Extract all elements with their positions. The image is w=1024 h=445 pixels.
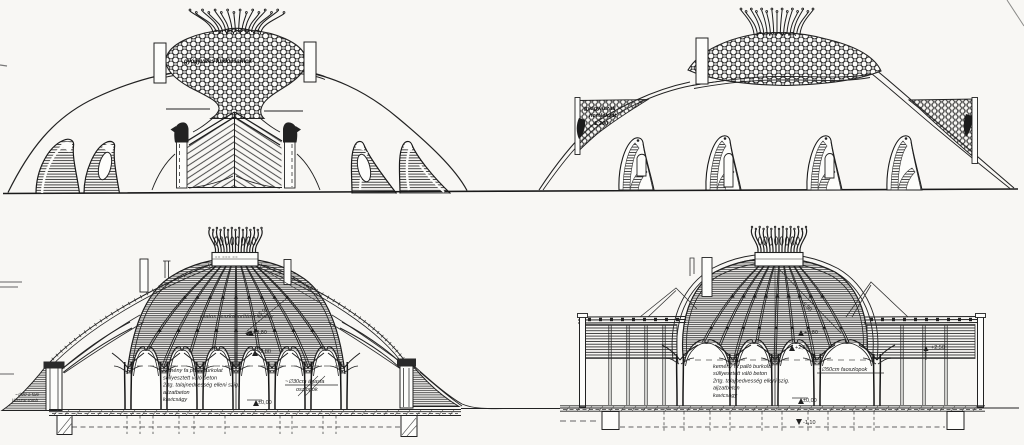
svg-text:oszlopok: oszlopok (296, 387, 318, 393)
svg-text:+2,80: +2,80 (257, 349, 271, 355)
svg-text:aljzatbeton: aljzatbeton (713, 386, 740, 392)
svg-text:kemény fa palló burkolat: kemény fa palló burkolat (163, 368, 223, 374)
svg-text:kavicságy: kavicságy (163, 397, 188, 403)
svg-text:~∅30cm ágasfa: ~∅30cm ágasfa (285, 379, 325, 385)
svg-text:1:200: 1:200 (594, 121, 608, 127)
svg-text:kavicságy: kavicságy (713, 393, 738, 399)
svg-text:gyógyászati: gyógyászati (583, 106, 616, 112)
svg-text:gyógyvizes fürdőcsarnok: gyógyvizes fürdőcsarnok (183, 59, 253, 65)
svg-text:2rtg. talajnedvesség elleni sz: 2rtg. talajnedvesség elleni szig. (162, 383, 239, 389)
svg-text:±0,00: ±0,00 (803, 398, 817, 404)
svg-text:+2,80: +2,80 (795, 345, 809, 351)
svg-text:homlokzat: homlokzat (589, 113, 617, 119)
svg-text:lábazat-tömb: lábazat-tömb (12, 398, 39, 403)
svg-text:+3,80: +3,80 (253, 330, 267, 336)
svg-text:süllyesztett váló beton: süllyesztett váló beton (713, 371, 767, 377)
svg-text:+3,80: +3,80 (804, 330, 818, 336)
svg-text:aljzatbeton: aljzatbeton (163, 390, 190, 396)
svg-text:+2,50: +2,50 (931, 345, 945, 351)
svg-text:~∅20-a falé: ~∅20-a falé (15, 392, 40, 397)
svg-text:-1,10: -1,10 (803, 420, 816, 426)
svg-text:±0,00: ±0,00 (258, 400, 272, 406)
svg-text:2rtg. talajnedvesség elleni sz: 2rtg. talajnedvesség elleni szig. (712, 378, 789, 384)
svg-text:== === ==: == === == (215, 255, 238, 260)
svg-text:~∅50cm faoszlopok: ~∅50cm faoszlopok (818, 367, 868, 373)
svg-text:süllyesztett váló beton: süllyesztett váló beton (163, 375, 217, 381)
svg-text:kemény fa palló burkolat: kemény fa palló burkolat (713, 364, 773, 370)
